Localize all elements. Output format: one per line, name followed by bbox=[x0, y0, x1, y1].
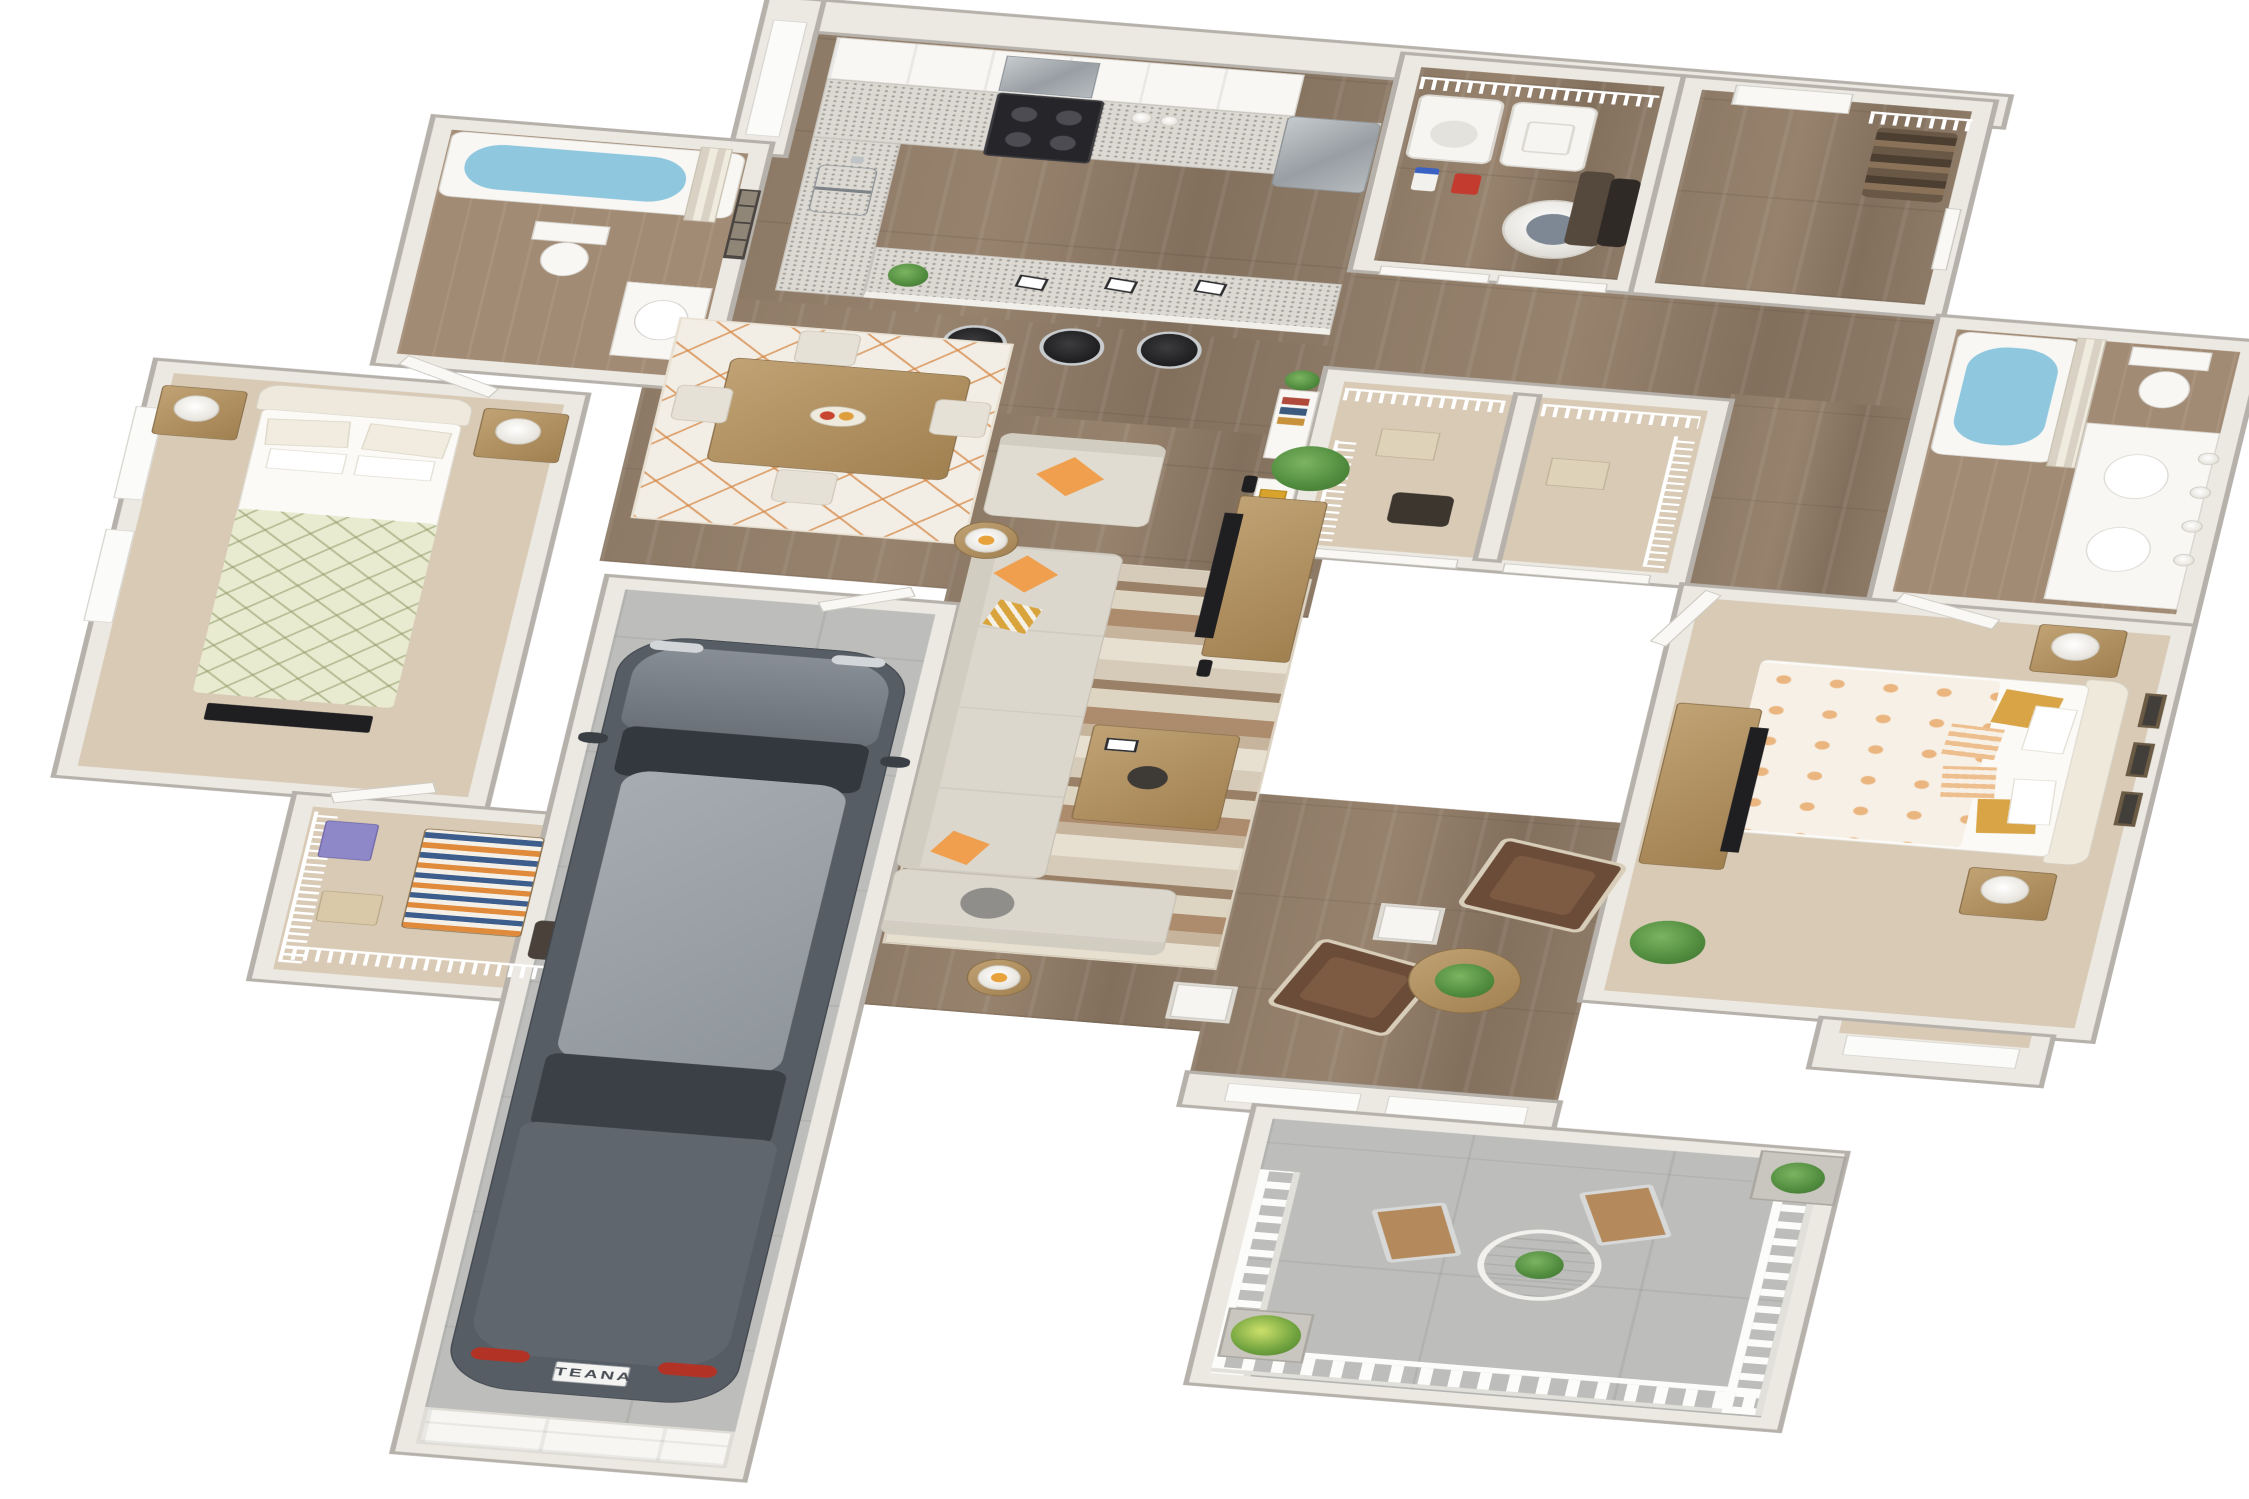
car-mirror bbox=[577, 731, 609, 744]
apartment-scene: TEANA bbox=[0, 0, 2249, 1499]
garage-door bbox=[416, 1407, 735, 1469]
garage-house-door bbox=[818, 587, 916, 612]
garage-items: TEANA bbox=[0, 0, 2249, 1499]
floor-plan-render: TEANA bbox=[0, 0, 2249, 1499]
